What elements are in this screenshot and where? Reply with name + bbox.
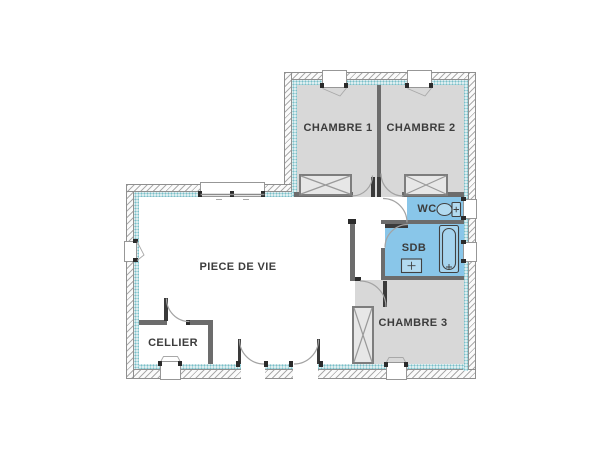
window-tick-ch2-right bbox=[429, 83, 433, 88]
window-tick-pdv-mid bbox=[230, 191, 234, 197]
partition-cellier-right bbox=[208, 320, 213, 364]
window-tick-ch3-right bbox=[404, 362, 408, 367]
door-leaf-chambre1 bbox=[371, 177, 375, 197]
door-leaf-chambre3 bbox=[383, 281, 387, 307]
window-tick-cellier-left bbox=[158, 361, 162, 366]
window-tick-ch2-left bbox=[405, 83, 409, 88]
wall-cap-terrace2-left bbox=[289, 361, 293, 367]
room-label-sdb: SDB bbox=[402, 242, 426, 254]
wall-cap-corridor-bottom bbox=[355, 277, 361, 281]
window-tick-left-top bbox=[133, 239, 138, 243]
door-opening-terrace-1 bbox=[241, 363, 265, 380]
closet-chambre2 bbox=[404, 174, 448, 196]
window-tick-pdv-left bbox=[198, 191, 202, 197]
plan-linework-overlay bbox=[0, 0, 600, 450]
door-arc-terrace-1 bbox=[240, 340, 265, 365]
floor-plan-canvas: CHAMBRE 1 CHAMBRE 2 WC SDB CHAMBRE 3 PIE… bbox=[0, 0, 600, 450]
room-label-chambre1: CHAMBRE 1 bbox=[304, 122, 373, 134]
room-label-piece-de-vie: PIECE DE VIE bbox=[200, 261, 277, 273]
wall-cap-cellier-door bbox=[186, 320, 190, 325]
closet-chambre1 bbox=[299, 174, 352, 196]
window-tick-pdv-right bbox=[261, 191, 265, 197]
window-tick-left-bottom bbox=[133, 258, 138, 262]
closet-chambre3 bbox=[352, 306, 374, 364]
wall-cap-corridor-top bbox=[348, 219, 356, 224]
window-tick-ch3-left bbox=[384, 362, 388, 367]
exterior-wall-top-right-wing bbox=[284, 72, 476, 80]
door-opening-terrace-2 bbox=[293, 363, 318, 380]
exterior-wall-left bbox=[126, 184, 134, 379]
door-arc-cellier bbox=[167, 299, 190, 322]
door-leaf-sdb bbox=[385, 224, 408, 228]
window-tick-ch1-right bbox=[344, 83, 348, 88]
window-tick-sdb-top bbox=[461, 240, 466, 244]
wall-cap-terrace1-left bbox=[236, 361, 240, 367]
room-label-chambre3: CHAMBRE 3 bbox=[379, 317, 448, 329]
exterior-wall-right bbox=[468, 72, 476, 379]
partition-chambre1-chambre2 bbox=[377, 85, 381, 177]
door-leaf-chambre2 bbox=[377, 177, 381, 197]
window-tick-ch1-left bbox=[320, 83, 324, 88]
door-arc-terrace-2 bbox=[294, 340, 319, 365]
door-leaf-cellier bbox=[164, 298, 168, 321]
partition-cellier-top-left bbox=[139, 320, 167, 325]
partition-sdb-bottom bbox=[381, 276, 464, 280]
room-label-wc: WC bbox=[417, 203, 436, 215]
room-label-cellier: CELLIER bbox=[148, 337, 198, 349]
wall-cap-terrace2-right bbox=[319, 361, 323, 367]
partition-sdb-left bbox=[381, 248, 385, 276]
insulation-left bbox=[134, 192, 139, 369]
room-label-chambre2: CHAMBRE 2 bbox=[387, 122, 456, 134]
window-tick-cellier-right bbox=[178, 361, 182, 366]
wall-cap-terrace1-right bbox=[264, 361, 268, 367]
window-tick-sdb-bottom bbox=[461, 259, 466, 263]
exterior-wall-left-right-wing bbox=[284, 72, 292, 193]
door-arc-wc bbox=[383, 199, 407, 223]
partition-corridor-piece-de-vie bbox=[350, 219, 355, 281]
window-tick-wc-bottom bbox=[461, 216, 466, 220]
window-tick-wc-top bbox=[461, 197, 466, 201]
